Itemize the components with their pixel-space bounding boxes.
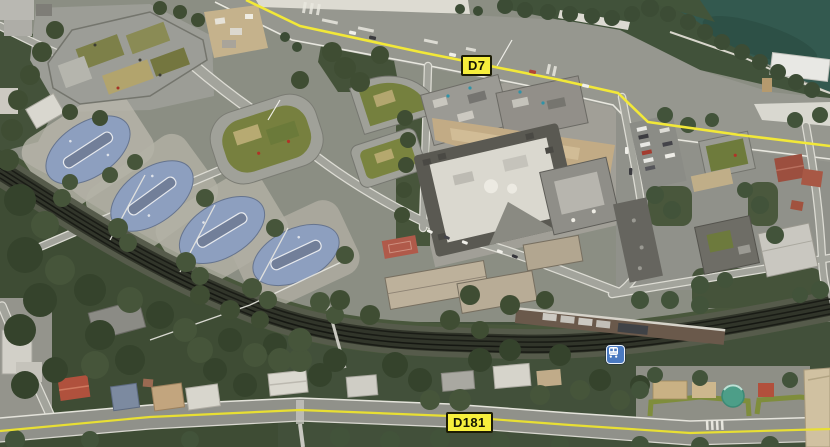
- route-badge-d181: D181: [446, 412, 493, 433]
- route-badge-d7: D7: [461, 55, 492, 76]
- satellite-imagery: [0, 0, 830, 447]
- train-glyph: [607, 346, 620, 359]
- map-viewport[interactable]: D7 D181: [0, 0, 830, 447]
- train-station-icon[interactable]: [606, 345, 625, 364]
